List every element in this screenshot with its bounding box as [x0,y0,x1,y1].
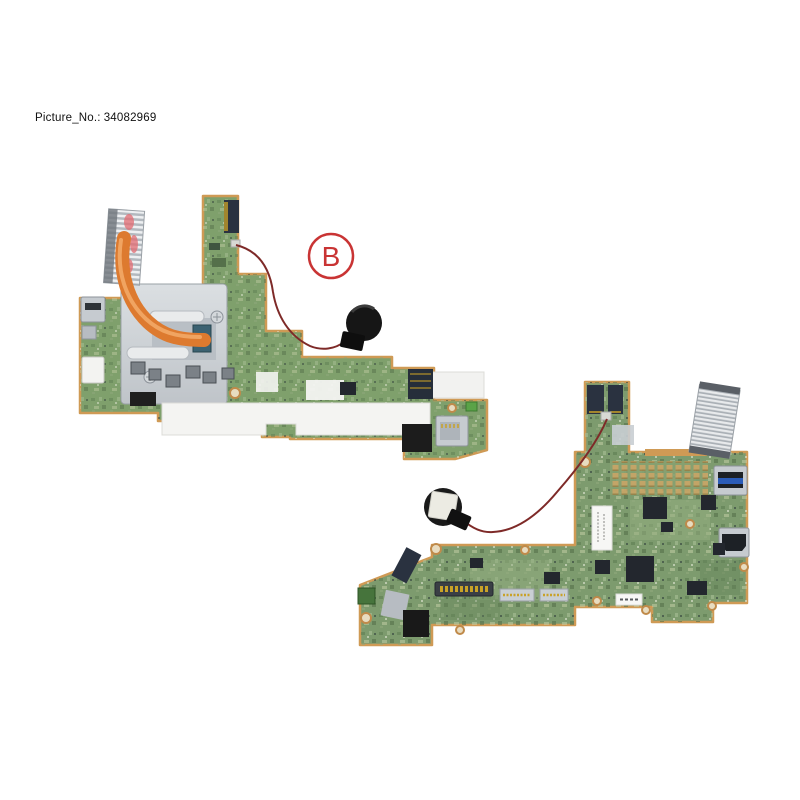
docking-connector [435,582,493,596]
board-connector-icon [408,369,433,399]
black-module [402,424,432,452]
small-label-sticker [616,594,642,605]
callout-b-label: B [322,241,341,272]
callout-b: B [309,234,353,278]
black-chip [130,392,156,406]
microsd-slot [436,416,468,446]
smd-part [209,243,220,250]
fpc-connector [540,589,568,601]
lvds-ribbon-cable [689,381,741,459]
catalog-photo-page: Picture_No.:34082969 [0,0,800,800]
side-connector [82,326,96,339]
picture-number-label: Picture_No.: [35,112,101,124]
top-board [80,196,487,459]
metal-bracket [612,425,634,445]
insulator-sheet [162,403,430,435]
green-component [466,402,477,411]
white-spacer-block [82,357,104,383]
green-edge-connector [358,588,375,604]
picture-number: Picture_No.:34082969 [35,112,159,124]
part-label-sticker [592,506,612,550]
mount-hole [230,388,240,398]
insulator-patch [306,380,344,400]
smd-part [212,258,226,267]
insulator-patch [256,372,278,392]
rtc-battery-bottom-view [424,488,472,531]
black-chip [340,382,356,395]
fpc-connector [500,589,534,601]
insulator-patch [430,372,484,398]
rtc-battery-top-view [340,305,382,351]
black-module [403,610,429,637]
usb-port-top-board [81,297,105,322]
connector-pins [224,202,228,231]
mount-hole [448,404,456,412]
smd-component-rows [610,461,708,495]
picture-number-value: 34082969 [104,112,157,124]
usb-port [714,466,747,495]
